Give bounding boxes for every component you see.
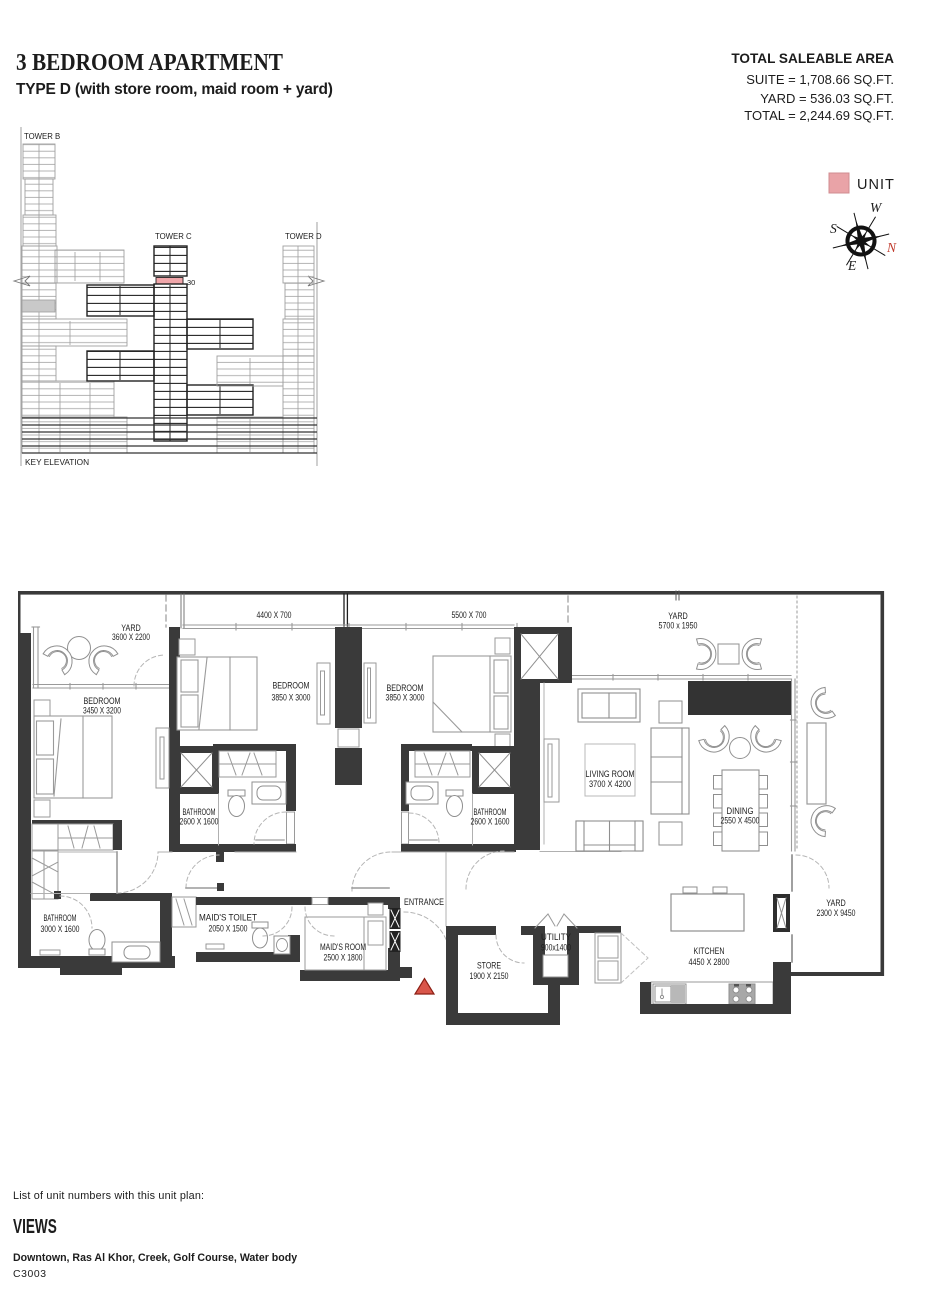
svg-text:5700 x 1950: 5700 x 1950 bbox=[659, 621, 698, 631]
svg-text:30: 30 bbox=[187, 278, 195, 287]
svg-text:5500 X 700: 5500 X 700 bbox=[452, 610, 487, 620]
svg-text:STORE: STORE bbox=[477, 961, 501, 971]
svg-text:YARD: YARD bbox=[668, 611, 688, 621]
svg-text:BATHROOM: BATHROOM bbox=[183, 807, 216, 817]
svg-text:BEDROOM: BEDROOM bbox=[273, 681, 310, 691]
svg-text:2500 X 1800: 2500 X 1800 bbox=[324, 953, 363, 963]
svg-text:DINING: DINING bbox=[727, 806, 754, 816]
svg-text:3 BEDROOM APARTMENT: 3 BEDROOM APARTMENT bbox=[16, 50, 283, 76]
svg-text:UNIT: UNIT bbox=[857, 177, 895, 193]
svg-text:E: E bbox=[847, 258, 857, 273]
svg-text:3000 X 1600: 3000 X 1600 bbox=[41, 924, 80, 934]
svg-text:3850 X 3000: 3850 X 3000 bbox=[272, 693, 311, 703]
svg-text:N: N bbox=[886, 240, 897, 255]
svg-text:List of unit numbers with this: List of unit numbers with this unit plan… bbox=[13, 1190, 204, 1202]
svg-text:2600 X 1600: 2600 X 1600 bbox=[180, 817, 219, 827]
svg-text:4450 X 2800: 4450 X 2800 bbox=[689, 957, 730, 967]
svg-text:BEDROOM: BEDROOM bbox=[84, 696, 121, 706]
svg-text:TOTAL = 2,244.69 SQ.FT.: TOTAL = 2,244.69 SQ.FT. bbox=[744, 108, 894, 123]
svg-text:BATHROOM: BATHROOM bbox=[44, 913, 77, 923]
svg-text:4400 X 700: 4400 X 700 bbox=[257, 610, 292, 620]
svg-text:VIEWS: VIEWS bbox=[13, 1215, 57, 1237]
svg-text:BATHROOM: BATHROOM bbox=[474, 807, 507, 817]
svg-text:TOWER B: TOWER B bbox=[24, 132, 60, 141]
svg-text:2300 X 9450: 2300 X 9450 bbox=[817, 908, 856, 918]
svg-text:SUITE = 1,708.66 SQ.FT.: SUITE = 1,708.66 SQ.FT. bbox=[746, 72, 894, 87]
svg-text:BEDROOM: BEDROOM bbox=[387, 683, 424, 693]
svg-text:2550 X 4500: 2550 X 4500 bbox=[721, 816, 760, 826]
svg-text:MAID'S TOILET: MAID'S TOILET bbox=[199, 913, 258, 923]
svg-text:ENTRANCE: ENTRANCE bbox=[404, 897, 444, 907]
svg-text:TOTAL SALEABLE AREA: TOTAL SALEABLE AREA bbox=[731, 51, 894, 66]
svg-text:Downtown, Ras Al Khor, Creek,: Downtown, Ras Al Khor, Creek, Golf Cours… bbox=[13, 1252, 297, 1264]
svg-text:S: S bbox=[830, 221, 837, 236]
svg-text:LIVING ROOM: LIVING ROOM bbox=[586, 769, 635, 779]
svg-text:KEY ELEVATION: KEY ELEVATION bbox=[25, 457, 89, 467]
svg-text:3600 X 2200: 3600 X 2200 bbox=[112, 632, 150, 642]
svg-text:900x1400: 900x1400 bbox=[541, 943, 571, 953]
svg-text:MAID'S ROOM: MAID'S ROOM bbox=[320, 942, 366, 952]
svg-text:3450 X 3200: 3450 X 3200 bbox=[83, 706, 121, 716]
svg-text:3700 X 4200: 3700 X 4200 bbox=[589, 779, 631, 789]
svg-text:KITCHEN: KITCHEN bbox=[694, 946, 725, 956]
svg-text:C3003: C3003 bbox=[13, 1269, 47, 1280]
svg-text:YARD: YARD bbox=[826, 898, 846, 908]
svg-text:TOWER D: TOWER D bbox=[285, 232, 322, 241]
svg-text:2050 X 1500: 2050 X 1500 bbox=[209, 924, 248, 934]
svg-text:TYPE D (with store room, maid: TYPE D (with store room, maid room + yar… bbox=[16, 81, 333, 98]
svg-text:TOWER C: TOWER C bbox=[155, 232, 192, 241]
svg-text:2600 X 1600: 2600 X 1600 bbox=[471, 817, 510, 827]
svg-text:W: W bbox=[870, 200, 883, 215]
svg-text:YARD = 536.03 SQ.FT.: YARD = 536.03 SQ.FT. bbox=[760, 91, 894, 106]
svg-text:1900 X 2150: 1900 X 2150 bbox=[470, 971, 509, 981]
svg-text:UTILITY: UTILITY bbox=[541, 932, 571, 942]
svg-text:3850 X 3000: 3850 X 3000 bbox=[386, 693, 425, 703]
